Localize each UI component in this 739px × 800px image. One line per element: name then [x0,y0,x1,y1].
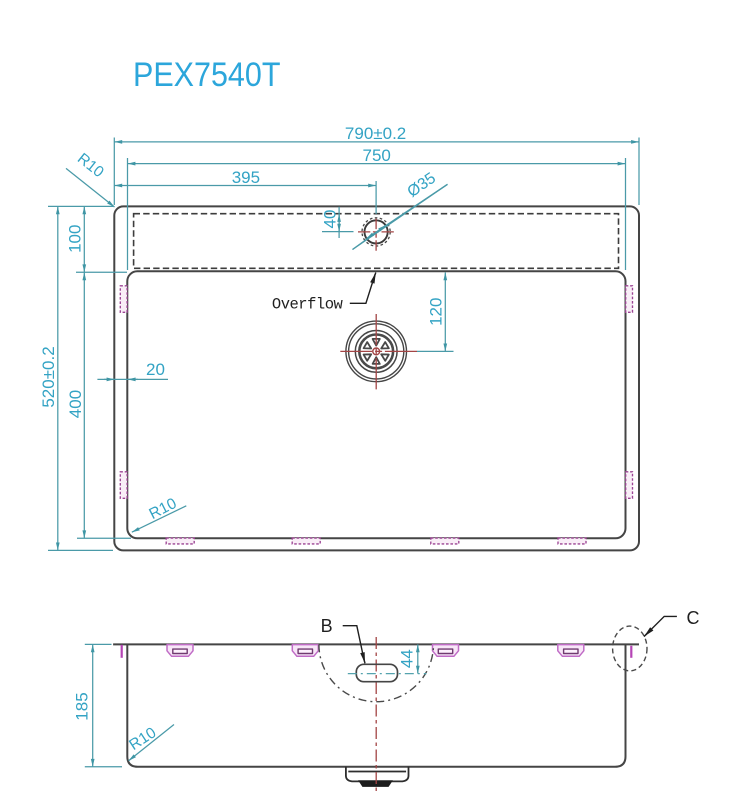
svg-text:790±0.2: 790±0.2 [345,124,406,143]
svg-text:Ø35: Ø35 [404,170,439,201]
svg-text:B: B [321,616,333,636]
svg-text:R10: R10 [146,495,179,523]
svg-text:400: 400 [66,390,85,418]
svg-text:750: 750 [363,146,391,165]
svg-text:185: 185 [73,692,92,720]
svg-text:520±0.2: 520±0.2 [39,346,58,407]
svg-text:R10: R10 [74,150,107,181]
svg-text:C: C [687,608,700,628]
svg-text:Overflow: Overflow [272,295,344,313]
svg-text:20: 20 [146,360,165,379]
svg-text:PEX7540T: PEX7540T [133,55,281,93]
svg-text:100: 100 [66,225,85,253]
svg-text:120: 120 [427,298,446,326]
svg-text:40: 40 [321,210,340,229]
svg-text:44: 44 [398,649,417,668]
svg-text:395: 395 [232,168,260,187]
